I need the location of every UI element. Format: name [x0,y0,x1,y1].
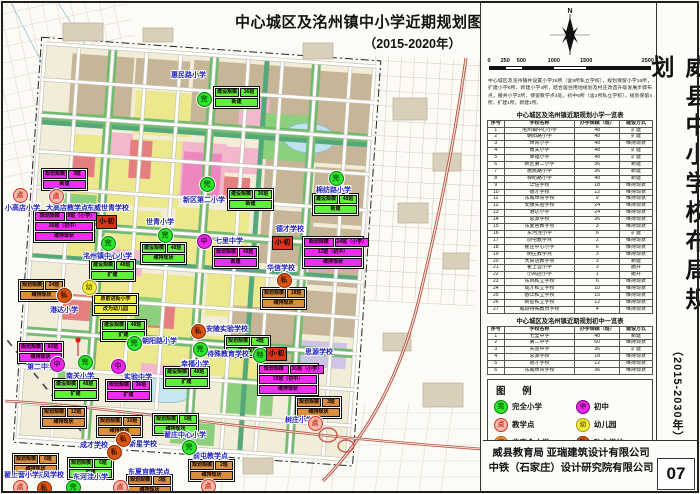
compass-rose-icon: N [540,5,600,57]
school-marker-xiaochu: 小·初 [266,347,287,361]
table-cell: 36 [575,217,620,224]
table-cell: 5 [488,155,505,162]
school-marker-wan: 完 [66,480,81,492]
info-cell: 36班 [132,381,150,390]
table-cell: 36 [575,367,620,374]
info-cell: 18班（初中） [259,375,317,384]
table-cell: 6 [575,279,620,286]
table-cell: 6 [488,162,505,169]
table-row: 13港达小学24维持现状 [488,210,653,217]
table-cell: 27 [488,306,505,313]
school-label: 成才学校 [80,440,108,450]
school-info-box: 建设规模48班扩建 [89,259,136,282]
column-header: 学校名称 [504,120,575,127]
scale-segment [522,67,554,69]
info-cell: 改为幼儿园 [94,305,137,314]
info-cell: 3班 [153,476,171,485]
info-cell: 2班 [215,461,233,470]
table-cell: 南关小学 [504,148,575,155]
table-cell: 12 [488,203,505,210]
info-panel: N 0250500100015002500 m 中心城区及洺州镇共设置小学26所… [483,3,657,440]
table-cell: 17 [488,237,505,244]
table-cell: 大高店教学点 [504,258,575,265]
info-cell: 60班 [44,343,62,352]
info-cell: 新建 [215,98,258,107]
info-cell: 12班（初中） [304,248,362,257]
credits-block: 威县教育局 亚瑞建筑设计有限公司 中铁（石家庄）设计研究院有限公司 07 [483,440,697,492]
scale-tick: 250 [501,58,510,64]
school-label: 南关小学 [66,371,94,381]
info-cell: 9班（小学） [66,212,98,221]
info-cell: 扩建 [54,390,97,399]
table-cell: 4 [575,306,620,313]
wan-badge-icon: 完 [494,400,508,414]
school-label: 惠民路小学 [171,70,206,80]
table-cell: 东河洼小学 [504,230,575,237]
table-cell: 2 [488,134,505,141]
info-cell: 6班 [179,415,197,424]
info-cell: 规划规模 [190,461,214,470]
table-row: 6东威世青学校36维持现状 [488,367,653,374]
school-label: 洺州镇中心小学 [83,251,132,261]
school-marker-si: 私 [57,288,72,303]
school-label: 小高店小学 [5,203,40,213]
table-row: 5德才学校12维持现状 [488,361,653,368]
school-marker-wan: 完 [182,440,197,455]
school-marker-dian: 点 [113,480,128,492]
table-cell: 春华私立学校 [504,292,575,299]
info-cell: 规划规模 [42,408,66,417]
info-cell: 规划规模 [107,381,131,390]
map-title-line1: 中心城区及洺州镇中小学近期规划图 [225,11,481,32]
dian-badge-icon: 点 [494,418,508,432]
legend-item: 中初中 [576,400,647,414]
school-label: 大高店教学点 [46,203,88,213]
scale-segment [490,67,506,69]
table-cell: 1 [575,272,620,279]
table-row: 25春华私立学校15维持现状 [488,292,653,299]
table-cell: 东威世青学校 [504,196,575,203]
north-arrow: N [487,5,653,57]
table-cell: 15 [575,292,620,299]
info-cell: 36班（小学） [290,365,325,374]
table-row: 16东河洼小学6扩建 [488,230,653,237]
info-cell: 建设规模 [142,244,166,253]
info-cell: 36班（初中） [35,222,93,231]
table-row: 23东风私立学校6维持现状 [488,279,653,286]
school-label: 翟上营小学 [4,470,39,480]
plan-summary-text: 中心城区及洺州镇共设置小学26所（含9所私立学校），规划保留小学16所，扩建小学… [488,78,652,108]
info-cell: 新建 [43,180,86,189]
table-cell: 16 [488,230,505,237]
info-cell: 规划规模 [35,212,65,221]
info-cell: 规划规模 [154,415,178,424]
table-row: 20大高店教学点3新建 [488,258,653,265]
table-cell: 2 [575,237,620,244]
table-cell: 七里中学 [504,333,575,340]
table-cell: 1 [488,127,505,134]
school-info-box: 规划规模18班维持现状 [260,287,307,310]
school-info-box: 规划规模3班新建 [41,168,88,191]
column-header: 办学规模（班） [575,326,620,333]
table-cell: 4 [488,354,505,361]
school-label: 实验中学 [124,372,152,382]
table-cell: 成才私立学校 [504,286,575,293]
school-info-box: 规划规模2班维持现状 [188,459,235,482]
table-cell: 48 [575,148,620,155]
table-row: 4思源学校18维持现状 [488,354,653,361]
legend-item: 点教学点 [494,418,576,432]
info-cell: 规划规模 [69,459,93,468]
table-cell: 15 [488,224,505,231]
info-cell: 规划规模 [20,281,44,290]
school-marker-si: 私 [107,445,122,460]
credit-lines: 威县教育局 亚瑞建筑设计有限公司 中铁（石家庄）设计研究院有限公司 [484,446,658,477]
table-cell: 2 [488,340,505,347]
table-cell: 10 [575,286,620,293]
scale-segment [586,67,650,69]
table-row: 14思源学校36维持现状 [488,217,653,224]
info-cell: 扩建 [107,391,150,400]
table-cell: 48 [575,127,620,134]
table-cell: 48 [575,155,620,162]
info-cell: 6班 [94,459,112,468]
info-cell: 建设规模 [165,368,189,377]
info-cell: 10班 [123,417,141,426]
table-row: 26新星私立学校12维持现状 [488,299,653,306]
table-row: 1洺州镇中心小学48扩建 [488,127,653,134]
table-cell: 5 [488,361,505,368]
table-row: 15东夏官教学点3维持现状 [488,224,653,231]
scale-bar-segments [489,66,651,70]
table-row: 1七里中学48新建 [488,333,653,340]
table-cell: 思源学校 [504,217,575,224]
table-cell: 扩建 [619,347,652,354]
info-cell: 规划规模 [214,248,238,257]
table-cell: 22 [488,272,505,279]
info-cell: 规划规模 [259,365,289,374]
school-label: 德才学校 [276,224,304,234]
table-row: 6新区第二小学36新建 [488,162,653,169]
school-label: 新星学校 [129,439,157,449]
school-info-box: 原前进街小学改为幼儿园 [92,293,139,316]
table-cell: 9 [488,182,505,189]
table-cell: 4 [488,148,505,155]
table-row: 12安陵实验学校24维持现状 [488,203,653,210]
table-cell: 21 [488,265,505,272]
table-cell: 36 [575,162,620,169]
school-info-box: 建设规模48班扩建 [52,378,99,401]
table-row: 17前屯教学点2维持现状 [488,237,653,244]
info-cell: 建设规模 [215,88,239,97]
school-marker-zhong: 中 [50,357,65,372]
info-cell: 48班 [339,195,357,204]
table-row: 3实验中学36扩建 [488,347,653,354]
school-info-box: 规划规模36班扩建 [105,379,152,402]
column-header: 学校名称 [504,326,575,333]
info-cell: 新建 [229,200,272,209]
school-marker-si: 私 [116,432,131,447]
school-marker-wan: 完 [127,336,142,351]
table-cell: 24 [488,286,505,293]
school-marker-dian: 点 [201,479,216,492]
table-cell: 18 [575,354,620,361]
school-marker-wan: 完 [158,228,173,243]
table-cell: 18 [575,182,620,189]
scale-segment [506,67,522,69]
scale-bar: 0250500100015002500 m [489,58,651,75]
table-cell: 德才学校 [504,361,575,368]
info-cell: 18班 [287,289,305,298]
school-info-box: 规划规模9班（小学）36班（初中）维持现状 [33,210,95,243]
info-cell: 维持现状 [262,299,305,308]
table-cell: 3 [575,258,620,265]
school-label: 七里中学 [215,236,243,246]
scale-segment [554,67,586,69]
table-cell: 思源学校 [504,354,575,361]
school-label: 安陵实验学校 [206,324,248,334]
scale-tick: 1500 [580,58,592,64]
middle-school-table: 序号学校名称办学规模（班）建设方式1七里中学48新建2第二中学60维持现状3实验… [487,326,653,375]
legend-label: 初中 [594,401,609,412]
info-cell: 原前进街小学 [94,295,137,304]
info-cell: 维持现状 [304,258,362,267]
table-cell: 维持现状 [619,340,652,347]
table-cell: 14 [488,217,505,224]
table-cell: 36 [575,347,620,354]
table-cell: 48 [575,134,620,141]
table-cell: 48 [575,333,620,340]
table-cell: 维持现状 [619,361,652,368]
legend-title: 图 例 [496,383,647,397]
info-cell: 24班（小学） [335,238,370,247]
table-cell: 东风私立学校 [504,279,575,286]
legend-item: 完完全小学 [494,400,576,414]
info-cell: 48班 [167,244,185,253]
table-cell: 7 [488,168,505,175]
table-cell: 德才学校 [504,189,575,196]
info-cell: 建设规模 [314,195,338,204]
table-cell: 6 [575,230,620,237]
info-cell: 规划规模 [128,476,152,485]
table-row: 5幸福小学48扩建 [488,155,653,162]
table-cell: 维持现状 [619,367,652,374]
school-label: 港达小学 [50,305,78,315]
table-row: 10德才学校12维持现状 [488,189,653,196]
info-cell: 48班 [190,368,208,377]
info-cell: 规划规模 [226,337,250,346]
info-cell: 规划规模 [98,417,122,426]
middle-table-title: 中心城区及洺州镇近期规划初中一览表 [487,316,653,325]
table-cell: 维持现状 [619,354,652,361]
school-info-box: 建设规模36班新建 [213,86,260,109]
school-marker-si: 私 [277,273,292,288]
table-cell: 洺州镇中心小学 [504,127,575,134]
table-cell: 20 [488,258,505,265]
table-cell: 9 [575,196,620,203]
table-cell: 3 [488,141,505,148]
table-cell: 48 [575,141,620,148]
school-info-box: 建设规模48班维持现状 [140,242,187,265]
column-header: 办学规模（班） [575,120,620,127]
info-cell: 扩建 [165,378,208,387]
table-cell: 19 [488,251,505,258]
table-row: 11东威世青学校9维持现状 [488,196,653,203]
page-number: 07 [657,458,695,490]
table-cell: 新区第二小学 [504,162,575,169]
school-info-box: 建设规模48班新建 [312,193,359,216]
school-marker-zhong: 中 [197,234,212,249]
info-cell: 48班 [239,248,257,257]
table-cell: 安陵实验学校 [504,203,575,210]
school-marker-xiaochu: 小·初 [96,215,117,229]
table-row: 21翟上营小学3撤并 [488,265,653,272]
school-marker-wan: 完 [193,342,208,357]
table-cell: 港达小学 [504,210,575,217]
school-info-box: 建设规模36班新建 [227,188,274,211]
info-cell: 规划规模 [297,398,321,407]
table-cell: 23 [488,279,505,286]
table-cell: 12 [575,189,620,196]
info-cell: 维持现状 [142,254,185,263]
info-cell: 规划规模 [14,455,38,464]
school-label: 特殊教育学校 [207,349,249,359]
column-header: 序号 [488,326,505,333]
school-marker-xiaochu: 小·初 [272,236,293,250]
table-cell: 前屯教学点 [504,237,575,244]
map-title-line2: （2015-2020年） [225,33,481,52]
school-marker-si: 私 [37,481,52,492]
table-cell: 威县特殊教育学校 [504,306,575,313]
table-cell: 12 [575,299,620,306]
map-title: 中心城区及洺州镇中小学近期规划图 （2015-2020年） [225,11,481,52]
scale-tick: 1000 [548,58,560,64]
school-label: 世青小学 [146,217,174,227]
table-cell: 8 [488,175,505,182]
legend-item: 幼幼儿园 [576,418,647,432]
table-cell: 棉纺路小学 [504,175,575,182]
table-row: 9华信学校18维持现状 [488,182,653,189]
sheet-title-years: （2015-2030年） [669,345,685,440]
table-cell: 26 [488,299,505,306]
zhong-badge-icon: 中 [576,400,590,414]
school-marker-wan: 完 [200,177,215,192]
table-cell: 1 [488,333,505,340]
primary-table-title: 中心城区及洺州镇近期规划小学一览表 [487,110,653,119]
table-cell: 25 [488,292,505,299]
info-cell: 48班 [127,321,145,330]
table-cell: 3 [575,224,620,231]
school-marker-wan: 完 [101,236,116,251]
legend-label: 教学点 [512,419,535,430]
table-cell: 13 [488,210,505,217]
scale-ticks: 0250500100015002500 m [489,58,651,65]
info-cell: 4班 [251,337,269,346]
school-marker-si: 私 [191,324,206,339]
info-cell: 维持现状 [128,486,171,491]
table-row: 8棉纺路小学48新建 [488,175,653,182]
info-cell: 规划规模 [262,289,286,298]
info-cell: 48班 [79,380,97,389]
table-row: 27威县特殊教育学校4维持现状 [488,306,653,313]
table-row: 7惠民路小学36新建 [488,168,653,175]
school-label: 棉纺路小学 [316,185,351,195]
table-row: 4南关小学48扩建 [488,148,653,155]
school-label: 幸福小学 [181,359,209,369]
info-cell: 扩建 [91,271,134,280]
school-label: 东威世青学校 [87,203,129,213]
table-cell: 10 [488,189,505,196]
credit-line2: 中铁（石家庄）设计研究院有限公司 [484,461,658,476]
info-cell: 3班 [322,398,340,407]
info-cell: 6班 [39,455,57,464]
table-cell: 3 [488,347,505,354]
school-marker-wan: 完 [197,92,212,107]
table-cell: 朝阳路小学 [504,134,575,141]
table-cell: 东夏官教学点 [504,224,575,231]
school-marker-wan: 完 [329,171,344,186]
table-cell: 世青小学 [504,141,575,148]
column-header: 序号 [488,120,505,127]
info-cell: 12班 [67,408,85,417]
school-info-box: 规划规模24班（小学）12班（初中）维持现状 [302,236,364,269]
info-cell: 建设规模 [102,321,126,330]
table-cell: 惠民路小学 [504,168,575,175]
table-cell: 3 [575,265,620,272]
info-cell: 新建 [314,205,357,214]
info-cell: 新建 [214,258,257,267]
table-cell: 东威世青学校 [504,367,575,374]
school-marker-you: 幼 [82,280,97,295]
info-cell: 规划规模 [19,343,43,352]
school-label: 翟庄中心小学 [164,430,206,440]
info-cell: 规划规模 [304,238,334,247]
table-cell: 36 [575,168,620,175]
primary-school-table: 序号学校名称办学规模（班）建设方式1洺州镇中心小学48扩建2朝阳路小学48扩建3… [487,120,653,314]
school-marker-dian: 点 [13,480,28,492]
table-cell: 翟庄中心小学 [504,244,575,251]
info-cell: 维持现状 [259,385,317,394]
scale-tick: 0 [487,58,490,64]
school-label: 东河洼小学 [73,472,108,482]
school-label: 东风学校 [36,470,64,480]
table-cell: 第二中学 [504,340,575,347]
plan-map: 中心城区及洺州镇中小学近期规划图 （2015-2020年） 建设规模36班新建惠… [3,3,481,491]
legend-label: 完全小学 [512,401,542,412]
table-cell: 翟上营小学 [504,265,575,272]
table-cell: 60 [575,340,620,347]
school-marker-dian: 点 [49,189,64,204]
info-cell: 维持现状 [42,418,85,427]
info-cell: 建设规模 [54,380,78,389]
info-cell: 36班 [240,88,258,97]
table-cell: 新星私立学校 [504,299,575,306]
sheet-title-strip: 威县中小学校布局规划 （2015-2030年） [657,3,697,440]
table-row: 2朝阳路小学48扩建 [488,134,653,141]
school-label: 朝阳路小学 [142,336,177,346]
table-cell: 18 [488,244,505,251]
you-badge-icon: 幼 [576,418,590,432]
table-row: 24成才私立学校10维持现状 [488,286,653,293]
table-row: 18翟庄中心小学6维持现状 [488,244,653,251]
info-cell: 3班 [68,170,86,179]
school-label: 新区第二小学 [183,195,225,205]
school-info-box: 建设规模48班扩建 [163,366,210,389]
school-label: 思源学校 [305,347,333,357]
table-row: 3世青小学48维持现状 [488,141,653,148]
north-letter: N [567,8,572,15]
table-cell: 24 [575,210,620,217]
